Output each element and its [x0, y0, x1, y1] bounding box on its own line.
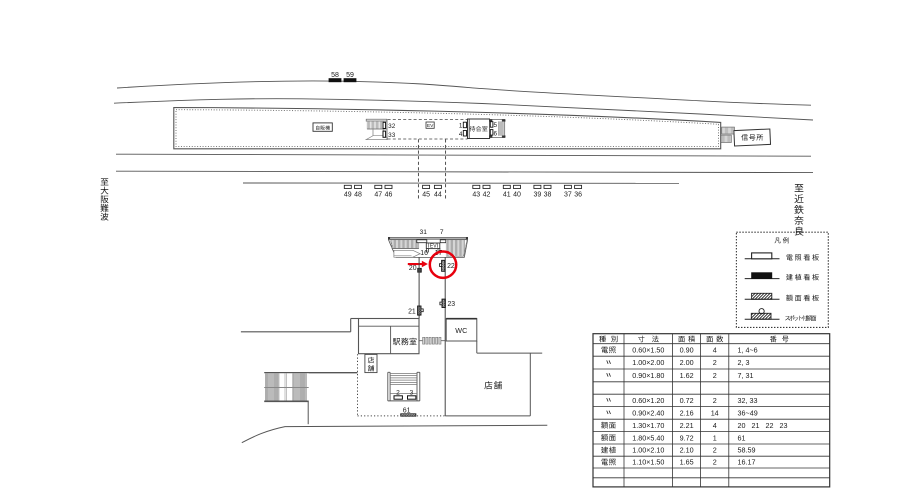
svg-text:1: 1	[459, 123, 463, 130]
svg-text:1.65: 1.65	[680, 458, 694, 467]
svg-text:22: 22	[447, 263, 455, 270]
svg-text:7: 7	[440, 229, 444, 236]
svg-text:16: 16	[420, 250, 428, 257]
svg-text:42: 42	[483, 191, 491, 198]
svg-text:44: 44	[434, 191, 442, 198]
svg-text:36: 36	[574, 191, 582, 198]
svg-text:61: 61	[738, 433, 746, 442]
svg-text:0.90×2.40: 0.90×2.40	[632, 408, 664, 417]
svg-text:58: 58	[331, 72, 339, 79]
svg-text:1.30×1.70: 1.30×1.70	[632, 421, 664, 430]
svg-text:47: 47	[374, 191, 382, 198]
svg-text:WC: WC	[455, 326, 467, 335]
svg-text:1.10×1.50: 1.10×1.50	[632, 458, 664, 467]
svg-text:32: 32	[388, 123, 396, 130]
svg-text:23: 23	[447, 301, 455, 308]
svg-text:7, 31: 7, 31	[738, 371, 754, 380]
svg-text:2: 2	[713, 371, 717, 380]
svg-text:1.00×2.00: 1.00×2.00	[632, 358, 664, 367]
svg-text:0.72: 0.72	[680, 396, 694, 405]
svg-text:EV: EV	[430, 244, 437, 250]
svg-text:21: 21	[408, 308, 416, 315]
svg-text:2: 2	[713, 458, 717, 467]
svg-text:1.80×5.40: 1.80×5.40	[632, 433, 664, 442]
svg-text:2.00: 2.00	[680, 358, 694, 367]
svg-text:48: 48	[354, 191, 362, 198]
svg-text:2.10: 2.10	[680, 446, 694, 455]
svg-text:59: 59	[346, 72, 354, 79]
svg-text:6: 6	[494, 130, 498, 137]
svg-text:41: 41	[503, 191, 511, 198]
svg-text:1, 4~6: 1, 4~6	[738, 346, 758, 355]
svg-text:16.17: 16.17	[738, 458, 756, 467]
svg-text:2.21: 2.21	[680, 421, 694, 430]
svg-text:43: 43	[472, 191, 480, 198]
svg-text:0.60×1.50: 0.60×1.50	[632, 346, 664, 355]
svg-text:20: 20	[409, 265, 417, 272]
svg-text:33: 33	[388, 132, 396, 139]
svg-text:EV: EV	[427, 123, 434, 129]
svg-text:9.72: 9.72	[680, 433, 694, 442]
svg-text:4: 4	[713, 421, 717, 430]
svg-text:14: 14	[711, 408, 719, 417]
svg-text:49: 49	[344, 191, 352, 198]
svg-text:1: 1	[713, 433, 717, 442]
svg-text:58.59: 58.59	[738, 446, 756, 455]
svg-text:0.60×1.20: 0.60×1.20	[632, 396, 664, 405]
svg-text:4: 4	[459, 131, 463, 138]
svg-text:39: 39	[534, 191, 542, 198]
svg-text:40: 40	[513, 191, 521, 198]
svg-text:2: 2	[713, 396, 717, 405]
svg-text:2: 2	[713, 446, 717, 455]
svg-text:31: 31	[420, 229, 428, 236]
svg-text:2.16: 2.16	[680, 408, 694, 417]
svg-text:1.62: 1.62	[680, 371, 694, 380]
svg-text:32, 33: 32, 33	[738, 396, 758, 405]
svg-text:1.00×2.10: 1.00×2.10	[632, 446, 664, 455]
svg-text:36~49: 36~49	[738, 408, 758, 417]
svg-text:2, 3: 2, 3	[738, 358, 750, 367]
svg-text:38: 38	[544, 191, 552, 198]
svg-text:0.90: 0.90	[680, 346, 694, 355]
svg-text:45: 45	[422, 191, 430, 198]
svg-text:61: 61	[403, 407, 411, 414]
svg-text:2: 2	[713, 358, 717, 367]
svg-text:20 21 22 23: 20 21 22 23	[738, 421, 788, 430]
svg-text:5: 5	[494, 122, 498, 129]
svg-text:0.90×1.80: 0.90×1.80	[632, 371, 664, 380]
svg-text:46: 46	[385, 191, 393, 198]
svg-text:37: 37	[564, 191, 572, 198]
svg-text:4: 4	[713, 346, 717, 355]
